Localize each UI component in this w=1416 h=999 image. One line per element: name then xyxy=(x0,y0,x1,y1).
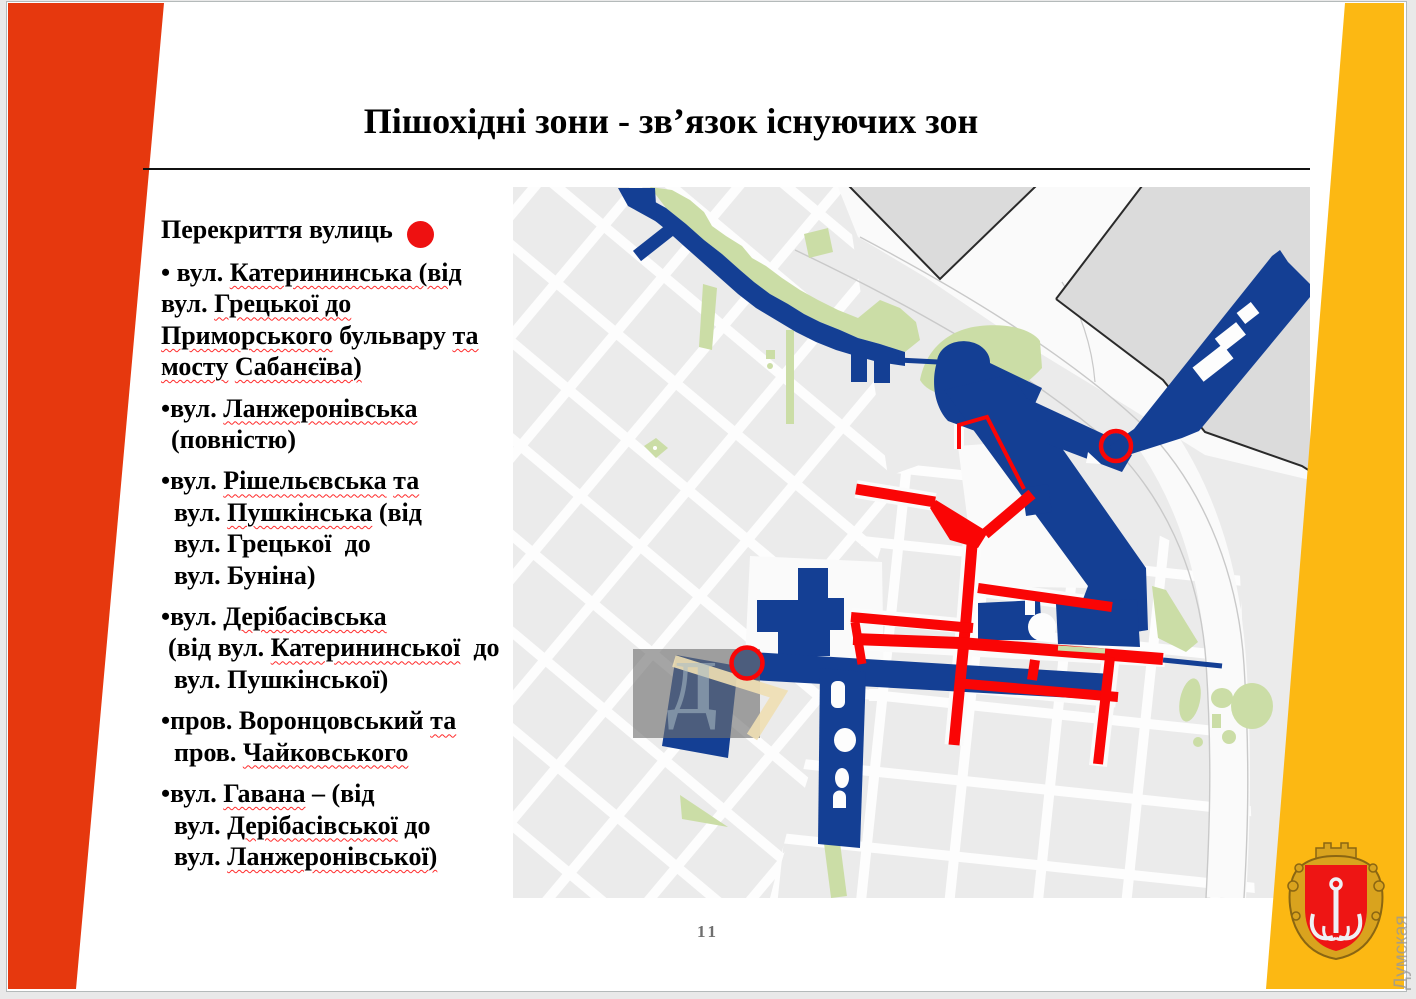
svg-text:Д: Д xyxy=(667,646,717,730)
